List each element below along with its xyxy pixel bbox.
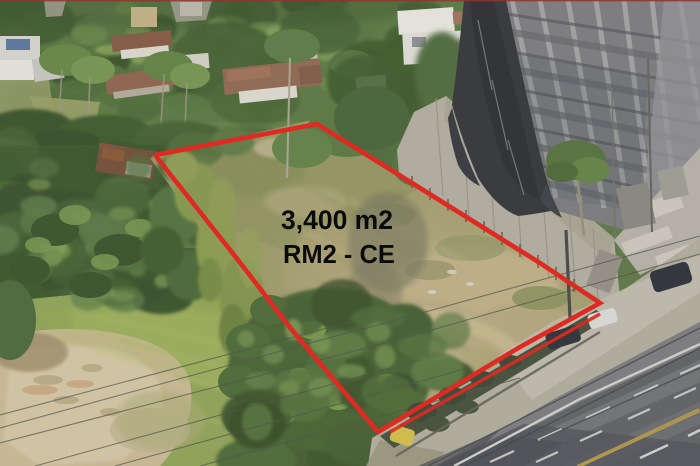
svg-text:RM2 - CE: RM2 - CE: [283, 241, 395, 269]
svg-text:3,400 m2: 3,400 m2: [281, 205, 393, 235]
